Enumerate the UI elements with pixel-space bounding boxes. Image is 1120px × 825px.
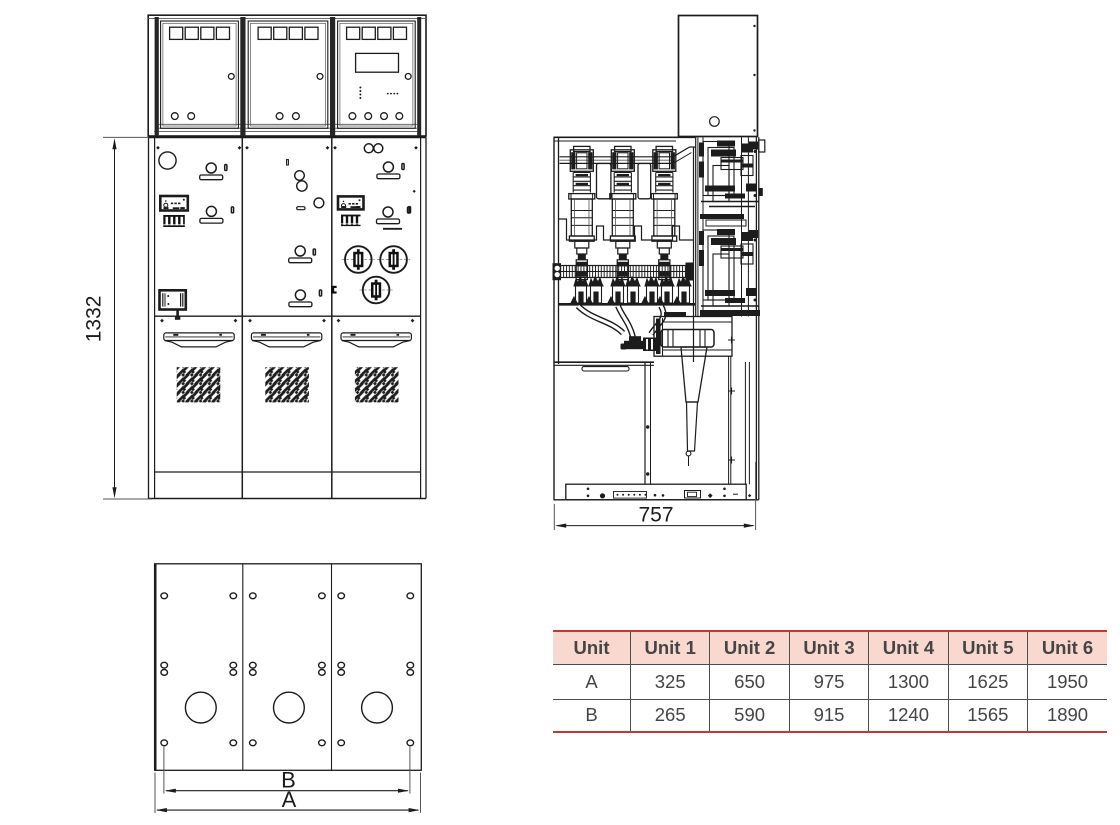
svg-text:A: A: [282, 787, 297, 812]
svg-text:757: 757: [638, 504, 673, 527]
svg-text:1332: 1332: [83, 296, 106, 343]
